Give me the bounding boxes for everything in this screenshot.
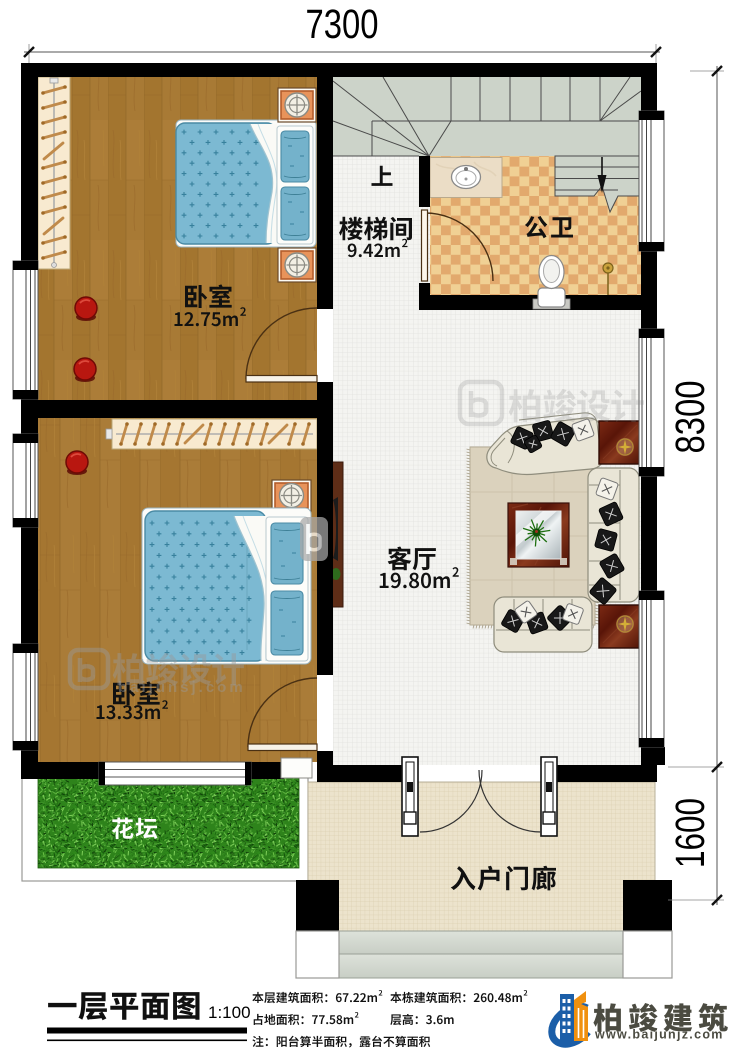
svg-text:1:100: 1:100: [208, 1003, 251, 1022]
svg-text:baijunsj.com: baijunsj.com: [118, 679, 246, 696]
svg-text:www.baijunjz.com: www.baijunjz.com: [594, 1028, 724, 1042]
